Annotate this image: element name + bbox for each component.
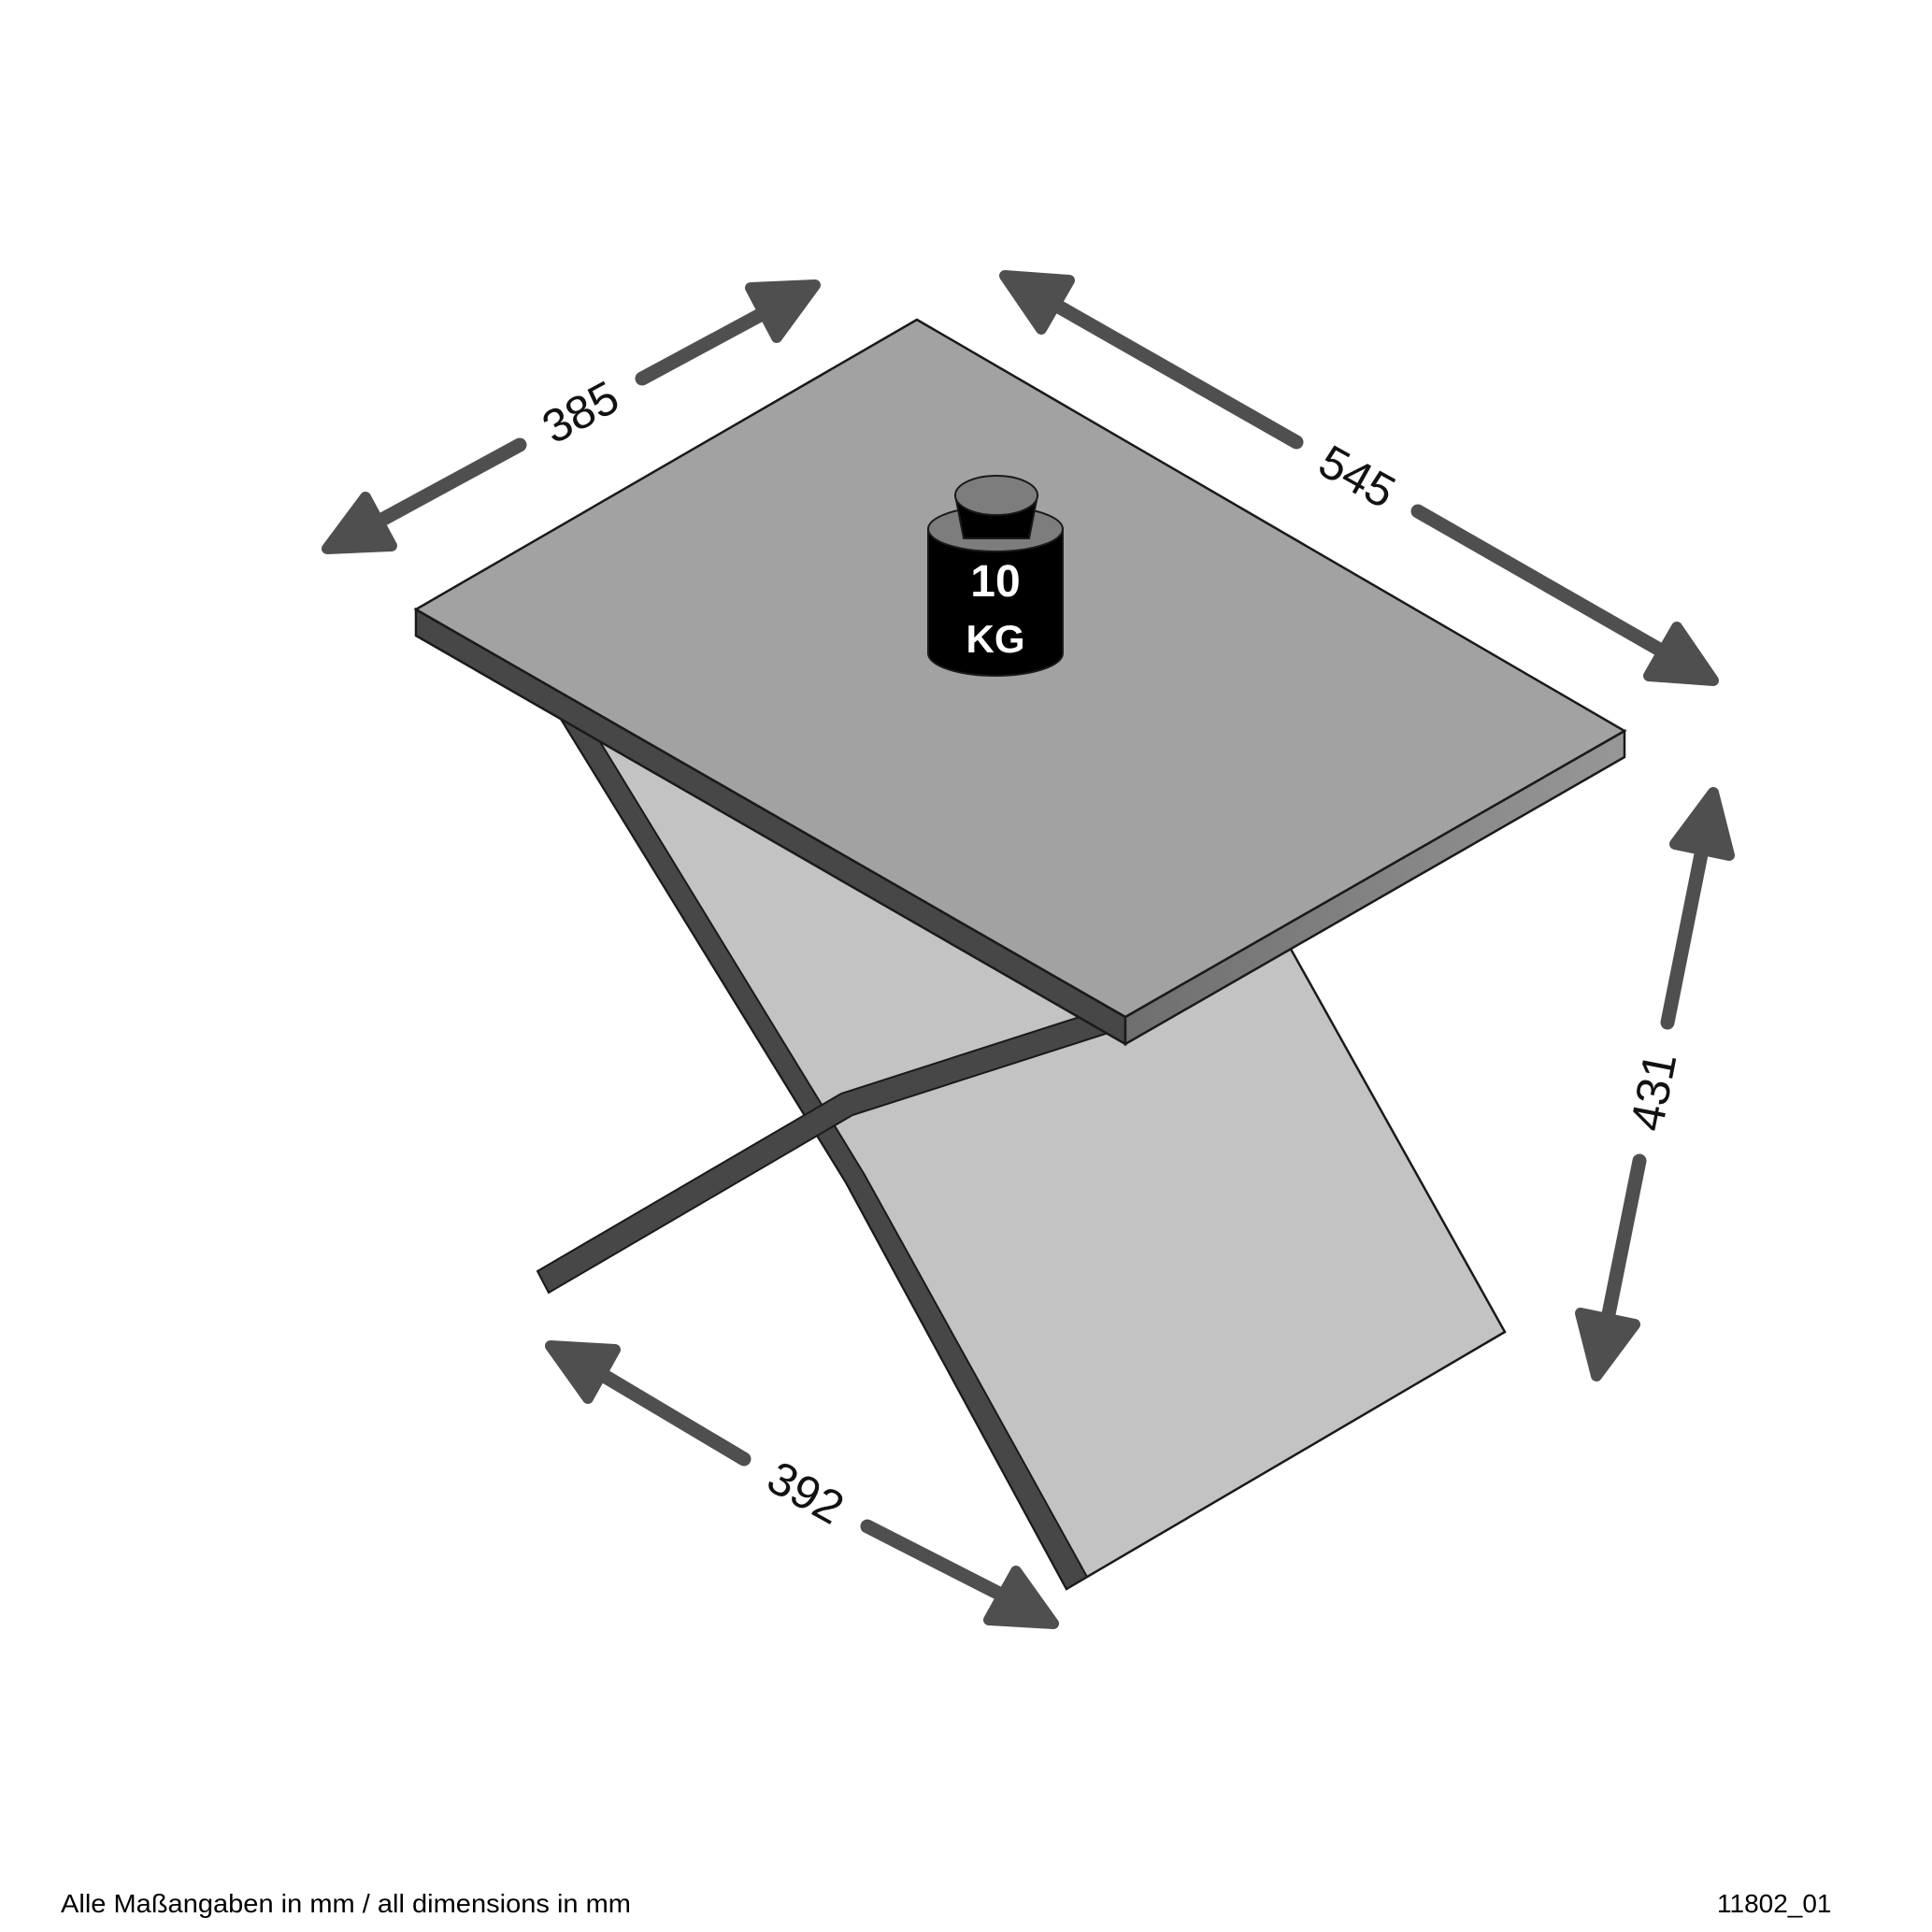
weight-unit-label: KG bbox=[966, 617, 1025, 661]
furniture-diagram-svg: 10 KG 385 545 431 392 Alle Maßangaben in… bbox=[0, 0, 1932, 1932]
footer-units-note: Alle Maßangaben in mm / all dimensions i… bbox=[61, 1889, 631, 1918]
dimension-drawing-canvas: 10 KG 385 545 431 392 Alle Maßangaben in… bbox=[0, 0, 1932, 1932]
footer-drawing-number: 11802_01 bbox=[1717, 1889, 1832, 1918]
weight-knob-top bbox=[955, 476, 1038, 515]
weight-value-label: 10 bbox=[970, 557, 1020, 607]
